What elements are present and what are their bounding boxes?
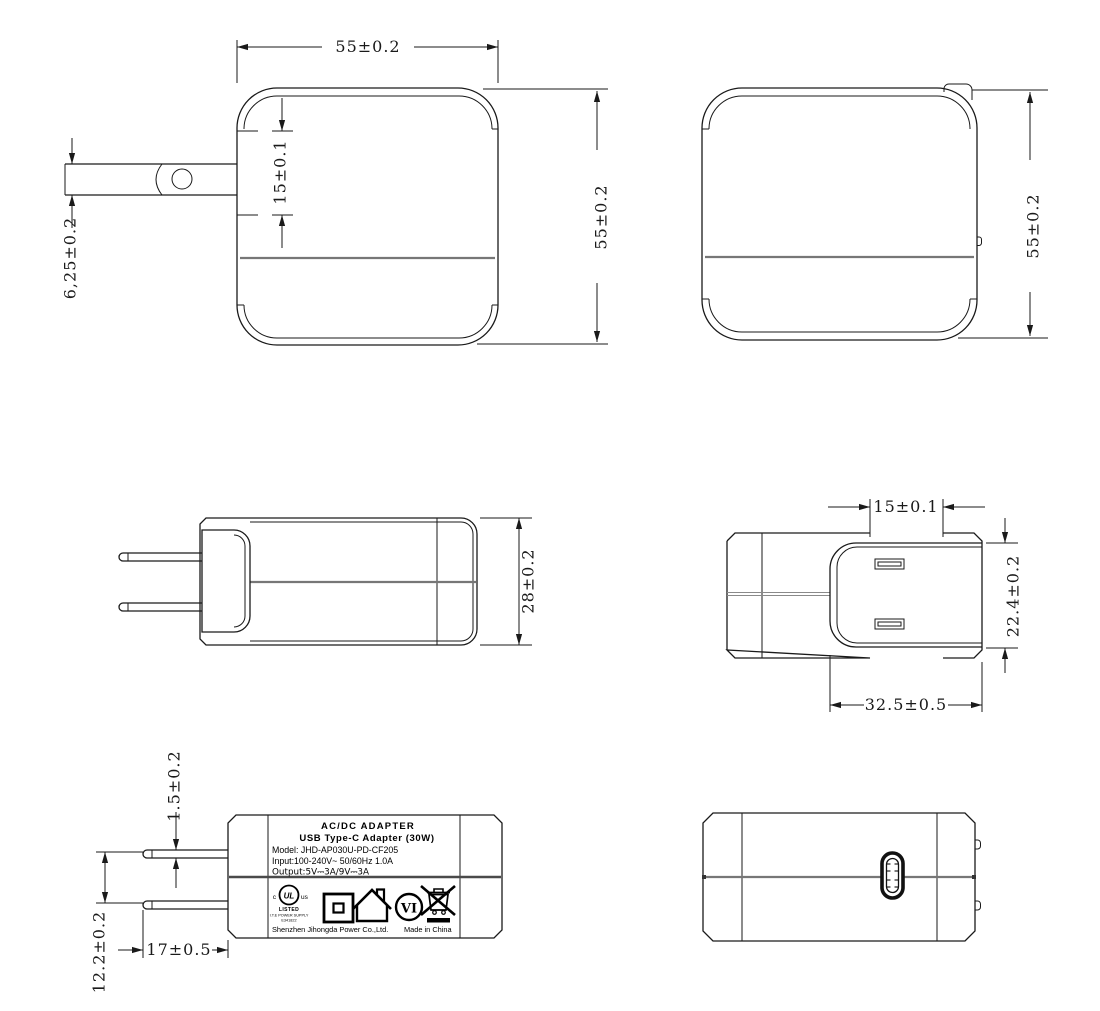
label-title: AC/DC ADAPTER [321,821,415,832]
side-tab [975,840,981,849]
dim-text-blade-thickness: 1.5±0.2 [165,750,184,821]
label-output: Output:5V⎓3A/9V⎓3A [272,868,369,878]
plug-housing-inner [234,535,245,627]
parting-line-end [702,875,706,879]
dim-text-front-height: 55±0.2 [592,184,611,249]
dim-text-blade-length: 17±0.5 [146,940,211,959]
rear-side-tab [977,237,982,246]
blade-fold-arc [156,164,162,195]
plug-pocket-outline [830,543,982,647]
side-view: 28±0.2 [119,518,538,645]
plug-pocket-inner [837,547,982,643]
ul-logo-text: UL [284,892,295,901]
label-model: Model: JHD-AP030U-PD-CF205 [272,845,398,855]
rating-label: AC/DC ADAPTER USB Type-C Adapter (30W) M… [272,821,435,878]
dim-top-slot: 15±0.1 [828,497,985,537]
bottom-view [702,813,981,941]
efficiency-vi-text: VI [400,902,417,917]
dim-text-front-width: 55±0.2 [335,37,400,56]
blade-slot [875,619,904,629]
dim-blade-thickness: 1.5±0.2 [165,750,184,888]
dim-text-top-plug-width: 32.5±0.5 [865,695,947,714]
indoor-use-icon [353,890,391,922]
ul-us-text: us [301,894,309,901]
label-origin: Made in China [404,925,453,934]
rear-top-seam [709,96,970,129]
dim-side-thickness: 28±0.2 [480,518,538,645]
dim-front-height: 55±0.2 [477,89,611,344]
label-subtitle: USB Type-C Adapter (30W) [299,833,434,844]
dim-blade-length: 17±0.5 [118,910,228,959]
ul-listed-icon: UL c us LISTED I.T.E POWER SUPPLY E34182… [270,886,309,923]
ac-blades-label-view [143,850,228,909]
front-view: 55±0.2 55±0.2 15±0.1 6,25±0.2 [61,37,611,345]
plug-housing [202,530,250,632]
blade-hole [172,169,192,189]
class-ii-icon [324,894,353,922]
dim-rear-height: 55±0.2 [958,90,1048,338]
rear-bottom-seam [709,299,970,332]
adapter-drawing: 55±0.2 55±0.2 15±0.1 6,25±0.2 [0,0,1100,1011]
blade-slot [875,559,904,569]
front-body-outline [237,88,498,345]
front-top-seam [244,96,492,129]
dim-blade-pitch: 12.2±0.2 [90,852,144,993]
ac-blade-front [65,164,237,195]
ac-blades-side [119,553,202,611]
dim-front-slot: 15±0.1 [271,98,290,248]
efficiency-vi-icon: VI [396,894,422,920]
label-company: Shenzhen Jihongda Power Co.,Ltd. [272,925,388,934]
front-bottom-seam [244,305,492,338]
label-input: Input:100-240V~ 50/60Hz 1.0A [272,856,393,866]
top-view: 15±0.1 22.4±0.2 32.5±0.5 [727,497,1023,714]
dim-top-depth: 22.4±0.2 [986,518,1023,673]
usb-c-port [882,853,903,898]
weee-icon [421,886,455,923]
dim-top-plug-width: 32.5±0.5 [830,655,982,714]
dim-text-rear-height: 55±0.2 [1024,193,1043,258]
dim-text-front-blade: 6,25±0.2 [61,217,80,299]
technical-drawing-sheet: 55±0.2 55±0.2 15±0.1 6,25±0.2 [0,0,1100,1011]
parting-line-end [972,875,976,879]
dim-text-blade-pitch: 12.2±0.2 [90,911,109,993]
ul-type-text: I.T.E POWER SUPPLY [270,914,309,918]
dim-text-front-slot: 15±0.1 [271,139,290,204]
dim-text-top-depth: 22.4±0.2 [1004,555,1023,637]
dim-text-side-thickness: 28±0.2 [519,548,538,613]
rear-view: 55±0.2 [702,84,1048,340]
ul-c-text: c [273,894,277,901]
dim-text-top-slot: 15±0.1 [873,497,938,516]
ul-file-text: E341822 [281,919,296,923]
dim-front-blade: 6,25±0.2 [61,138,80,299]
dim-front-width: 55±0.2 [237,37,498,83]
label-view: AC/DC ADAPTER USB Type-C Adapter (30W) M… [90,750,503,993]
rear-body-outline [702,88,977,340]
side-tab [975,901,981,910]
ul-listed-text: LISTED [279,907,299,913]
